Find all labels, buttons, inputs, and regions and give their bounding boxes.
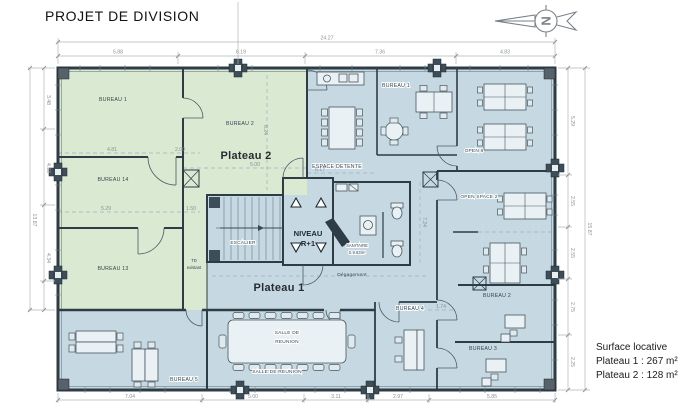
dim-top-1: 5.88	[113, 50, 123, 56]
dim-inner-7: 6.24	[262, 125, 268, 135]
label-plateau1: Plateau 1	[253, 282, 304, 294]
dim-left-3: 4.34	[45, 253, 51, 263]
label-salle-table-2: REUNION	[275, 339, 299, 345]
dim-inner-6: 6.17	[315, 167, 325, 173]
dim-right-3: 2.55	[569, 248, 575, 258]
label-bureau2-green: BUREAU 2	[226, 121, 254, 127]
dim-right-4: 2.75	[569, 302, 575, 312]
dim-inner-8: 7.24	[421, 217, 427, 227]
dim-inner-4: 1.50	[186, 206, 196, 212]
label-open8: OPEN 8	[465, 148, 484, 154]
label-bureau14: BUREAU 14	[97, 177, 128, 183]
dim-left-total: 13.87	[31, 214, 37, 227]
dim-right-1: 5.29	[569, 116, 575, 126]
label-bureau3: BUREAU 3	[469, 346, 497, 352]
dim-bottom-5: 5.85	[487, 394, 497, 400]
label-degagement: Dégagement	[337, 272, 367, 278]
dim-bottom-3: 3.11	[331, 394, 341, 400]
label-salle-table-1: SALLE DE	[275, 330, 300, 336]
floor-plan-page: PROJET DE DIVISION Surface locative Plat…	[0, 0, 700, 420]
label-escalier: ESCALIER	[230, 240, 256, 246]
dim-inner-3: 5.29	[101, 206, 111, 212]
label-bureau5: BUREAU 5	[170, 377, 198, 383]
dim-left-1: 3.48	[45, 95, 51, 105]
label-td-existant: existant	[187, 265, 202, 270]
label-bureau1-blue: BUREAU 1	[382, 83, 410, 89]
dim-bottom-1: 7.04	[125, 394, 135, 400]
north-letter: N	[539, 16, 554, 25]
north-arrow-icon: N	[495, 5, 576, 37]
dim-right-5: 2.25	[569, 357, 575, 367]
label-plateau2: Plateau 2	[220, 150, 271, 162]
label-bureau1-green: BUREAU 1	[99, 97, 127, 103]
dim-bottom-4: 2.97	[393, 394, 403, 400]
dim-top-3: 7.36	[375, 50, 385, 56]
label-salle-caption: SALLE DE REUNION	[252, 369, 302, 375]
label-bureau2-blue: BUREAU 2	[483, 293, 511, 299]
label-bureau13: BUREAU 13	[97, 266, 128, 272]
dim-right-total: 15.87	[586, 223, 592, 236]
label-open-space2: OPEN SPACE 2	[460, 194, 497, 200]
dim-inner-1: 4.81	[107, 147, 117, 153]
dim-inner-9: 1.74	[436, 304, 446, 310]
dim-top-2: 6.19	[236, 50, 246, 56]
dim-top-4: 4.83	[500, 50, 510, 56]
label-td: TD	[191, 258, 197, 263]
label-sanitaire: SANITAIRE	[346, 243, 368, 248]
dim-top-total: 24.27	[321, 36, 334, 42]
dim-right-2: 2.55	[569, 196, 575, 206]
floor-plan-drawing: BUREAU 1 BUREAU 2 Plateau 2 BUREAU 14 BU…	[0, 0, 700, 420]
label-niveau-1: NIVEAU	[294, 229, 323, 238]
label-niveau-2: R+1	[301, 239, 316, 248]
dim-inner-5: 5.00	[250, 162, 260, 168]
dim-inner-2: 2.00	[175, 147, 185, 153]
dim-bottom-2: 5.00	[248, 394, 258, 400]
label-sanitaire-area: S.9.63m²	[349, 250, 367, 255]
label-bureau4: BUREAU 4	[396, 306, 424, 312]
dim-left-2: 4.38	[45, 163, 51, 173]
